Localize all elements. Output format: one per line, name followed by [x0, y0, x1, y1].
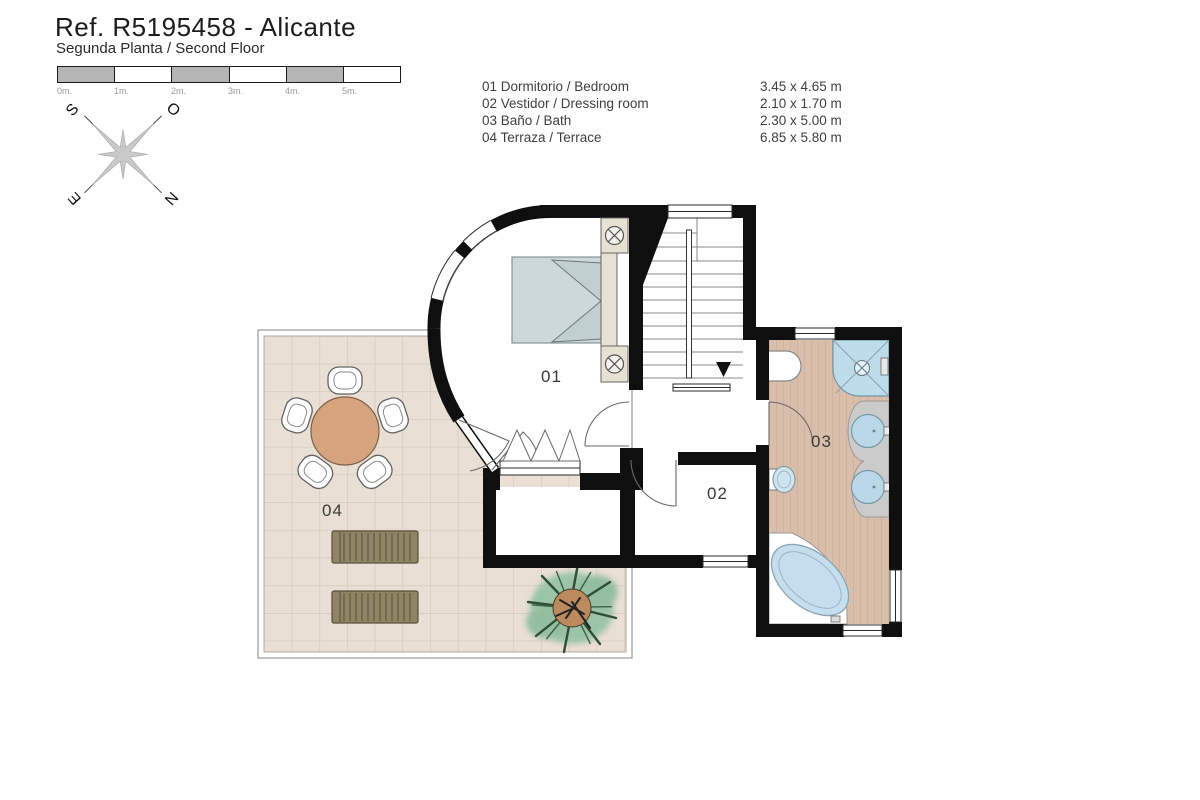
shower	[833, 340, 889, 396]
floorplan-page: Ref. R5195458 - Alicante Segunda Planta …	[0, 0, 1200, 800]
ceiling-light-icon	[606, 227, 624, 245]
stair-handrail	[687, 230, 692, 378]
sink	[852, 471, 885, 504]
bathroom-room	[757, 340, 890, 630]
sink	[852, 415, 885, 448]
room-label-bedroom: 01	[541, 367, 562, 386]
bed	[512, 253, 617, 347]
nightstand	[601, 218, 628, 253]
room-label-terrace: 04	[322, 501, 343, 520]
ceiling-light-icon	[606, 355, 624, 373]
round-table	[311, 397, 379, 465]
floor-plan: 01 02 03 04	[0, 0, 1200, 800]
shower-head-icon	[881, 358, 888, 375]
room-label-vestidor: 02	[707, 484, 728, 503]
headboard	[601, 253, 617, 347]
room-label-bath: 03	[811, 432, 832, 451]
sun-lounger	[332, 531, 418, 563]
nightstand	[601, 346, 628, 382]
toilet	[769, 467, 795, 493]
sun-lounger	[332, 591, 418, 623]
